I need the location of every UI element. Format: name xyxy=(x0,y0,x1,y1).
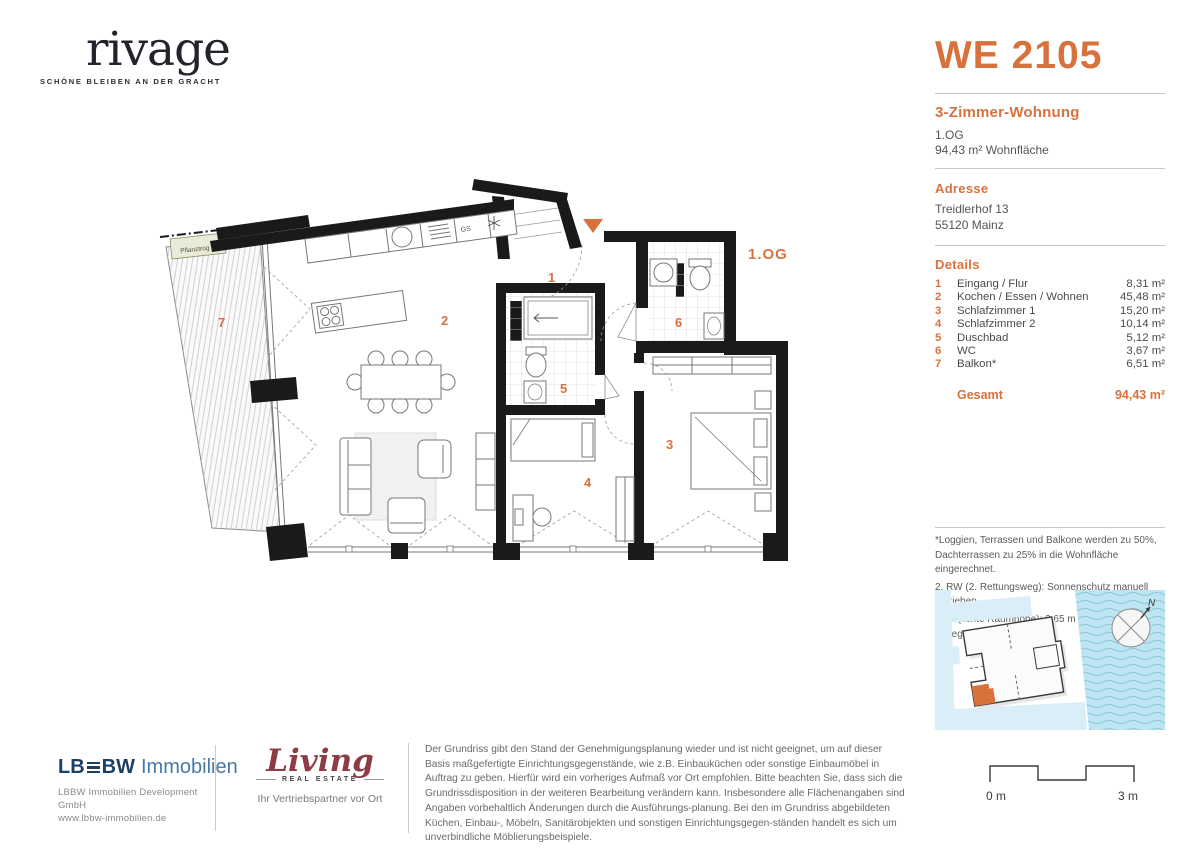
divider xyxy=(935,527,1165,528)
info-sidebar: WE 2105 3-Zimmer-Wohnung 1.OG 94,43 m² W… xyxy=(935,0,1165,848)
stair-core xyxy=(510,208,562,239)
map-water xyxy=(1075,590,1165,730)
table-row: 4 Schlafzimmer 2 10,14 m² xyxy=(935,318,1165,331)
room-area: 6,51 m² xyxy=(1126,358,1165,371)
unit-id: WE 2105 xyxy=(935,34,1165,78)
room-name: Balkon* xyxy=(957,358,1126,371)
lbbw-bw: BW xyxy=(102,756,135,779)
lounge xyxy=(340,433,495,533)
island-cooktop-icon xyxy=(317,303,344,328)
unit-area: 94,43 m² Wohnfläche xyxy=(935,143,1165,157)
map-building xyxy=(963,616,1072,710)
room-label-4: 4 xyxy=(584,475,592,490)
room-label-3: 3 xyxy=(666,437,673,452)
address-heading: Adresse xyxy=(935,181,1165,196)
lbbw-wordmark: LB BW Immobilien xyxy=(58,756,208,779)
bedroom1 xyxy=(644,357,771,511)
ottoman xyxy=(388,498,425,533)
room-number: 2 xyxy=(935,291,957,304)
room-name: Schlafzimmer 2 xyxy=(957,318,1120,331)
total-area: 94,43 m² xyxy=(1115,388,1165,402)
divider xyxy=(935,168,1165,169)
rivage-tagline: SCHÖNE BLEIBEN AN DER GRACHT xyxy=(40,77,240,86)
lbbw-company: LBBW Immobilien Development GmbH xyxy=(58,786,208,812)
toilet-icon xyxy=(526,353,546,377)
room-label-7: 7 xyxy=(218,315,225,330)
unit-type: 3-Zimmer-Wohnung xyxy=(935,104,1165,121)
details-heading: Details xyxy=(935,257,1165,272)
table-row: 5 Duschbad 5,12 m² xyxy=(935,332,1165,345)
room-area: 8,31 m² xyxy=(1126,278,1165,291)
total-label: Gesamt xyxy=(957,388,1115,402)
room-number: 7 xyxy=(935,358,957,371)
table-row: 3 Schlafzimmer 1 15,20 m² xyxy=(935,305,1165,318)
scale-end-label: 3 m xyxy=(1118,789,1138,803)
room-name: WC xyxy=(957,345,1126,358)
lbbw-lb: LB xyxy=(58,756,85,779)
scale-start-label: 0 m xyxy=(986,789,1006,803)
room-area: 10,14 m² xyxy=(1120,318,1165,331)
room-label-1: 1 xyxy=(548,270,555,285)
entrance-marker-icon xyxy=(583,219,603,233)
plan-floor-label: 1.OG xyxy=(748,246,788,263)
rivage-wordmark: rivage xyxy=(86,26,240,74)
table-row: 2 Kochen / Essen / Wohnen 45,48 m² xyxy=(935,291,1165,304)
room-label-6: 6 xyxy=(675,315,682,330)
floor-plan-drawing: Pflanztrog xyxy=(158,175,806,603)
desk-chair xyxy=(533,508,551,526)
table-row: 7 Balkon* 6,51 m² xyxy=(935,358,1165,371)
divider xyxy=(935,245,1165,246)
lbbw-logo: LB BW Immobilien LBBW Immobilien Develop… xyxy=(58,756,208,825)
lbbw-suffix: Immobilien xyxy=(141,756,238,779)
room-number: 6 xyxy=(935,345,957,358)
table-row: 6 WC 3,67 m² xyxy=(935,345,1165,358)
sofa xyxy=(340,438,371,515)
room-area: 3,67 m² xyxy=(1126,345,1165,358)
divider xyxy=(935,93,1165,94)
floorplan-page: rivage SCHÖNE BLEIBEN AN DER GRACHT Pfla… xyxy=(0,0,1200,848)
room-area: 5,12 m² xyxy=(1126,332,1165,345)
footer-divider xyxy=(408,743,409,833)
room-name: Eingang / Flur xyxy=(957,278,1126,291)
footnote: *Loggien, Terrassen und Balkone werden z… xyxy=(935,534,1165,578)
room-number: 4 xyxy=(935,318,957,331)
lbbw-website[interactable]: www.lbbw-immobilien.de xyxy=(58,812,208,825)
disclaimer-text: Der Grundriss gibt den Stand der Genehmi… xyxy=(425,743,909,846)
dishwasher-label: GS xyxy=(460,226,471,234)
details-table: 1 Eingang / Flur 8,31 m² 2 Kochen / Esse… xyxy=(935,278,1165,372)
dining-table xyxy=(347,351,455,413)
room-number: 1 xyxy=(935,278,957,291)
address-city: 55120 Mainz xyxy=(935,218,1165,232)
living-subtitle: REAL ESTATE xyxy=(232,776,408,783)
room-area: 45,48 m² xyxy=(1120,291,1165,304)
wc-door-leaf xyxy=(618,303,636,341)
shelf-cabinet xyxy=(476,433,495,510)
table-row: 1 Eingang / Flur 8,31 m² xyxy=(935,278,1165,291)
address-street: Treidlerhof 13 xyxy=(935,202,1165,216)
bath-door-leaf xyxy=(605,375,619,399)
room-number: 5 xyxy=(935,332,957,345)
scale-bar: 0 m 3 m xyxy=(982,754,1142,806)
room-label-2: 2 xyxy=(441,313,448,328)
unit-floor: 1.OG xyxy=(935,128,1165,142)
room-name: Schlafzimmer 1 xyxy=(957,305,1120,318)
armchair xyxy=(418,440,451,478)
living-wordmark: Living xyxy=(232,744,408,778)
room-label-5: 5 xyxy=(560,381,567,396)
north-label: N xyxy=(1148,598,1156,609)
total-row: Gesamt 94,43 m² xyxy=(935,388,1165,402)
toilet-icon xyxy=(690,266,710,290)
nightstand xyxy=(755,493,771,511)
room-area: 15,20 m² xyxy=(1120,305,1165,318)
living-logo: Living REAL ESTATE Ihr Vertriebspartner … xyxy=(232,744,408,805)
lbbw-bars-icon xyxy=(87,762,100,774)
room-name: Kochen / Essen / Wohnen xyxy=(957,291,1120,304)
nightstand xyxy=(755,391,771,409)
room-name: Duschbad xyxy=(957,332,1126,345)
rivage-logo: rivage SCHÖNE BLEIBEN AN DER GRACHT xyxy=(40,26,240,86)
room-number: 3 xyxy=(935,305,957,318)
living-tagline: Ihr Vertriebspartner vor Ort xyxy=(232,793,408,805)
site-map: N xyxy=(935,590,1165,730)
kitchen-island xyxy=(311,291,406,334)
